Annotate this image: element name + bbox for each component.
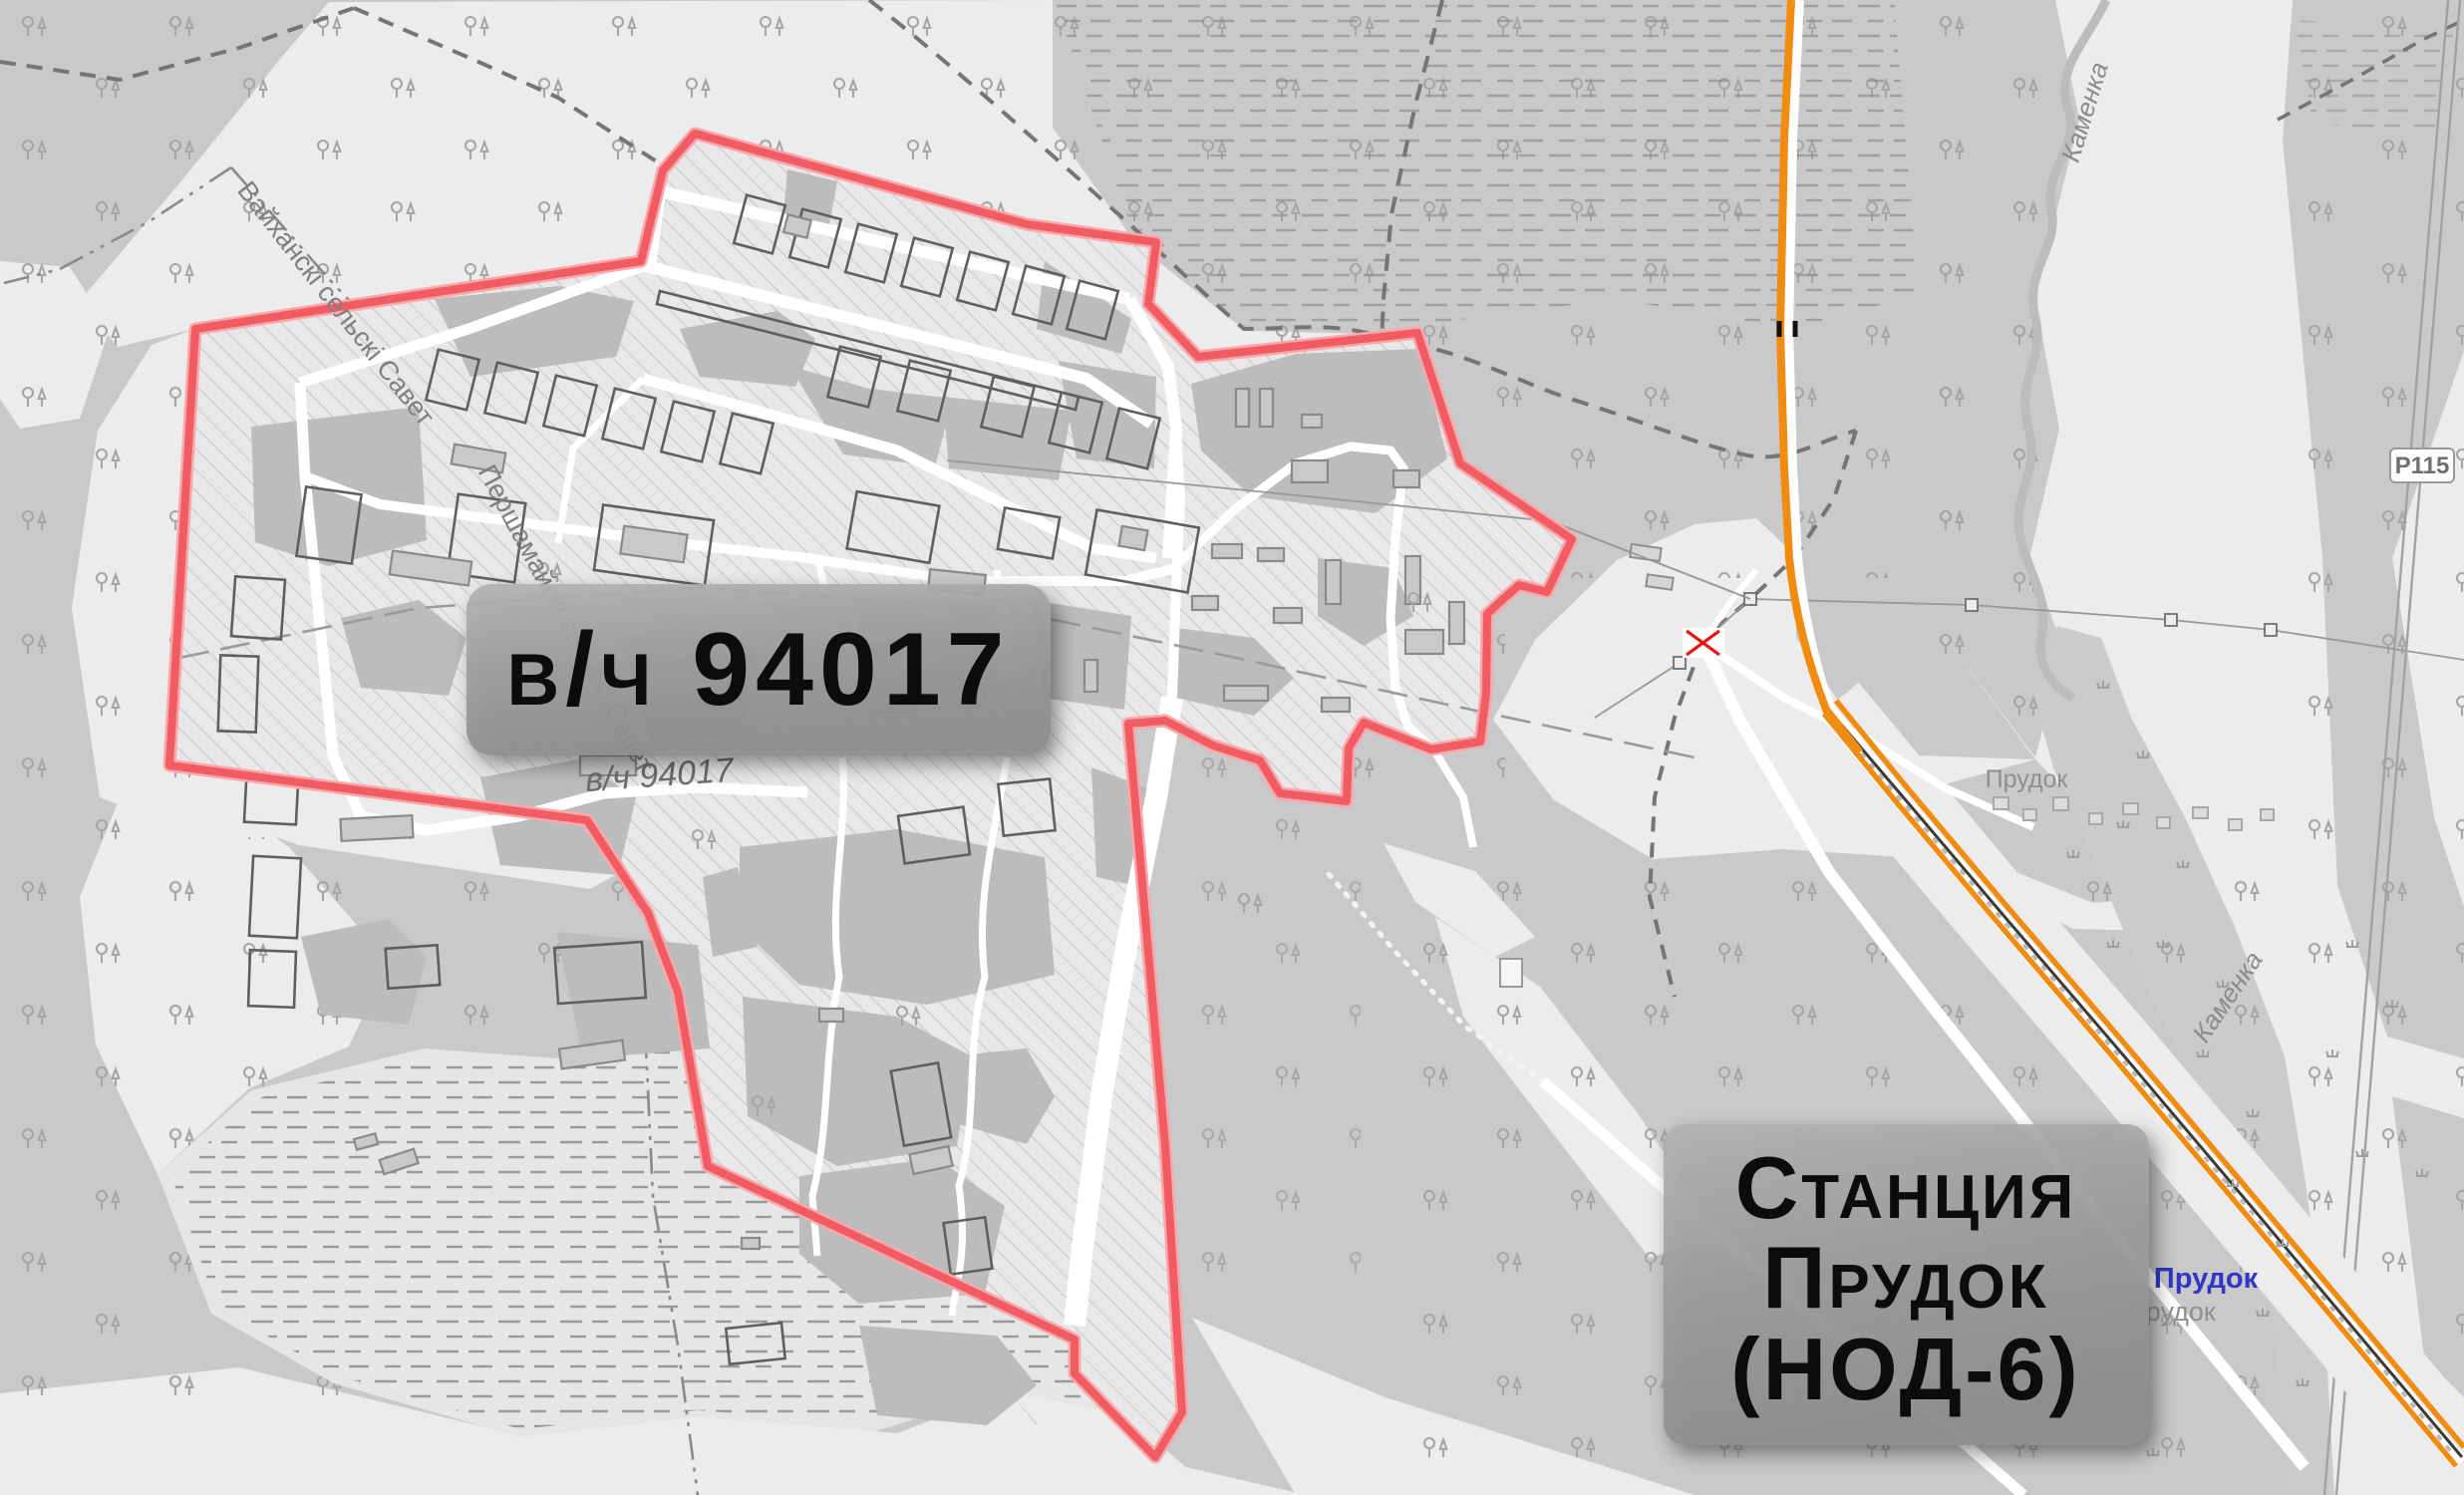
svg-text:(НОД-6): (НОД-6)	[1730, 1320, 2080, 1418]
svg-text:Прудок: Прудок	[1986, 765, 2069, 793]
svg-text:Прудок: Прудок	[2154, 1263, 2259, 1295]
svg-text:в/ч 94017: в/ч 94017	[507, 612, 1011, 728]
svg-text:Р115: Р115	[2395, 452, 2450, 479]
svg-text:Прудок: Прудок	[1762, 1228, 2048, 1327]
svg-text:Станция: Станция	[1735, 1138, 2076, 1237]
